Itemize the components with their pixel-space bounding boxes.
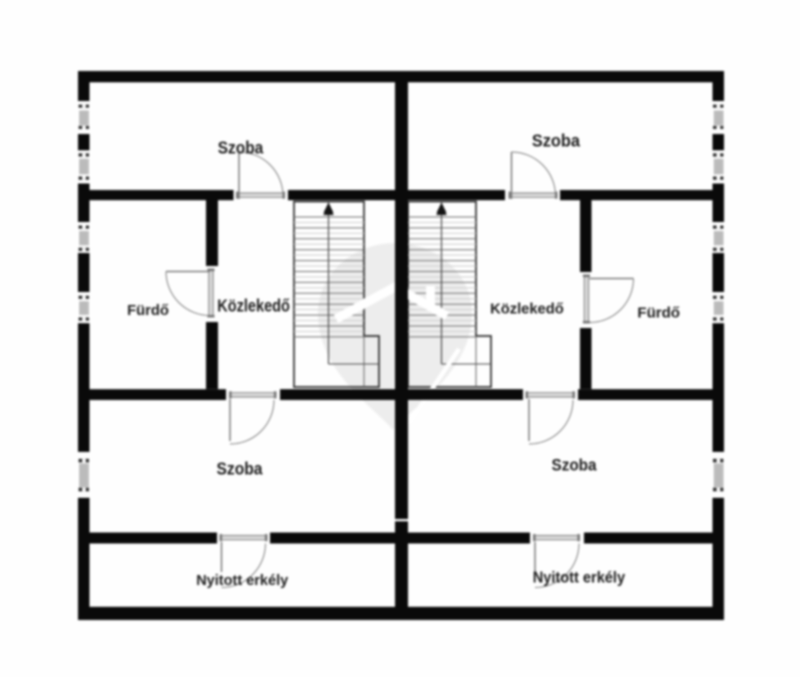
- svg-text:Nyitott erkély: Nyitott erkély: [196, 572, 289, 589]
- svg-text:Szoba: Szoba: [218, 137, 264, 157]
- svg-text:Nyitott erkély: Nyitott erkély: [533, 570, 626, 587]
- svg-text:Szoba: Szoba: [532, 131, 580, 151]
- svg-text:Közlekedő: Közlekedő: [217, 295, 290, 315]
- svg-text:Szoba: Szoba: [552, 456, 597, 475]
- svg-text:Fürdő: Fürdő: [637, 304, 680, 321]
- svg-text:Fürdő: Fürdő: [127, 303, 169, 319]
- svg-text:Szoba: Szoba: [217, 459, 263, 479]
- svg-text:Közlekedő: Közlekedő: [490, 302, 564, 318]
